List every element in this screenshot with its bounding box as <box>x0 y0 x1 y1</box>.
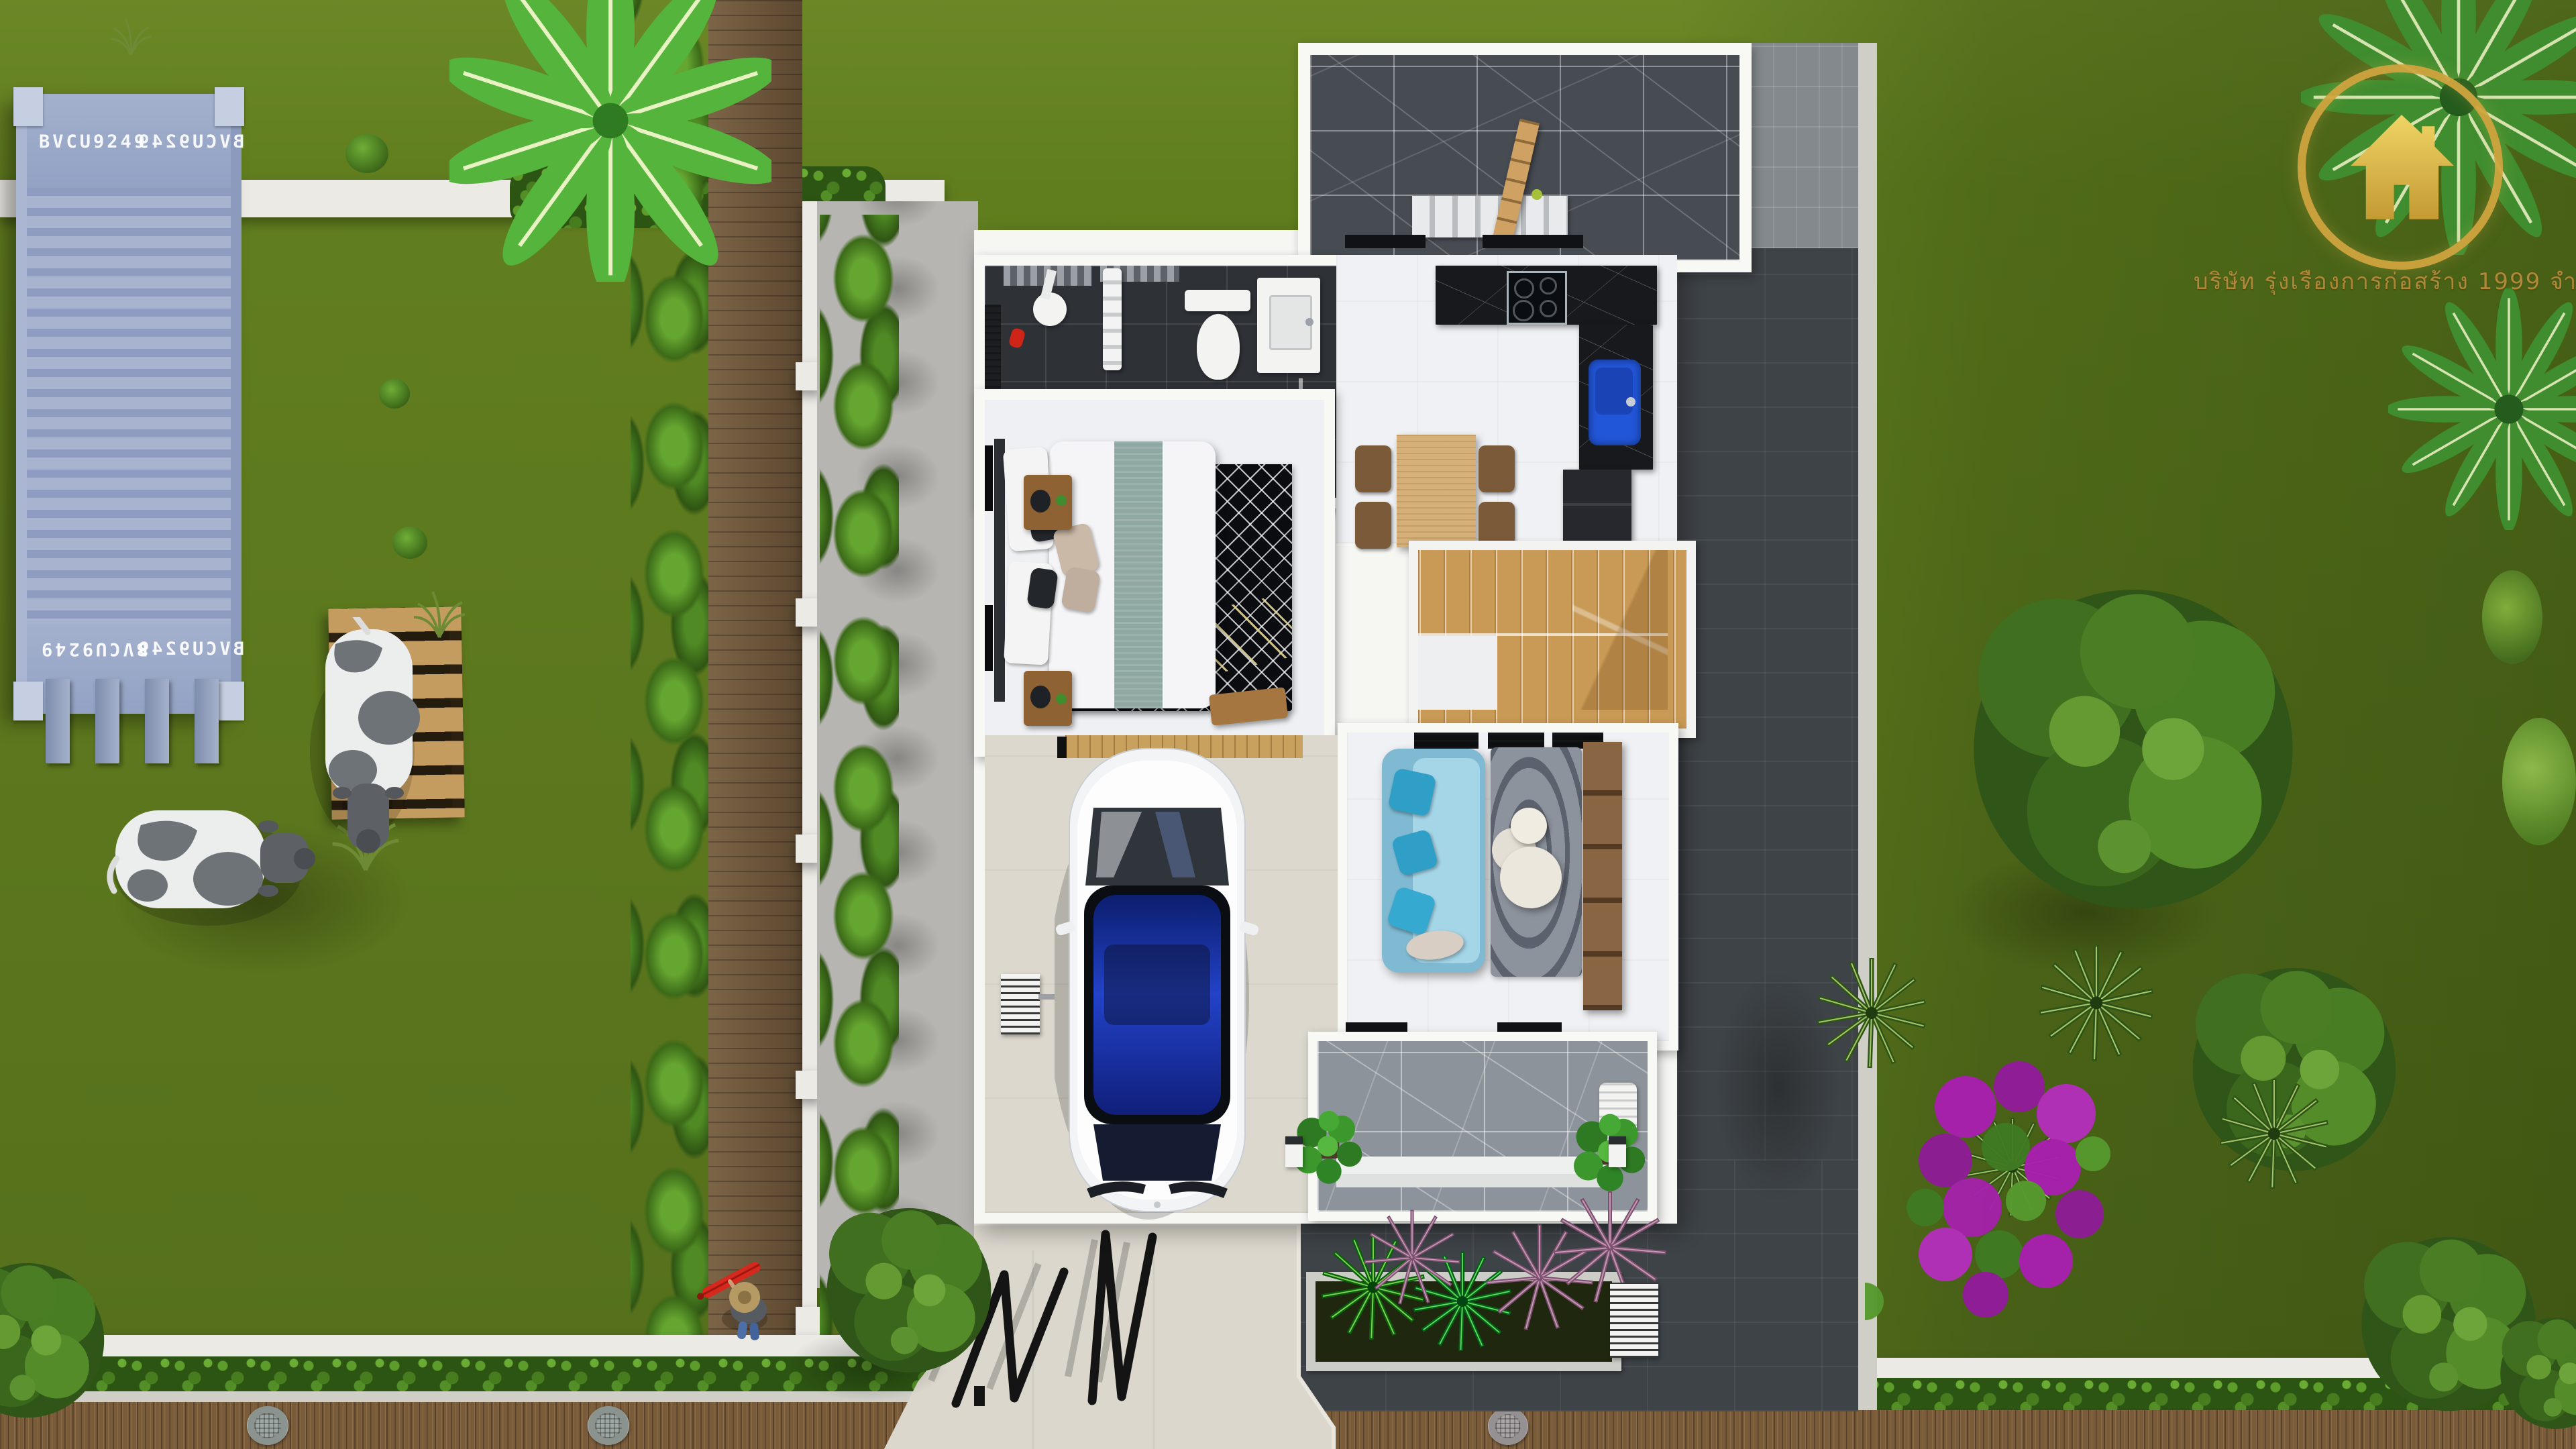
throw-pillow-beige <box>1061 566 1101 613</box>
living-room <box>1338 723 1678 1051</box>
induction-cooktop <box>1507 271 1567 325</box>
u-shaped-staircase <box>1409 541 1696 738</box>
container-code-mirrored: BVCU9249 <box>136 131 244 152</box>
nightstand <box>1024 671 1072 726</box>
company-logo-ring <box>2298 64 2503 270</box>
table-lamp <box>1030 686 1051 708</box>
toilet-bowl <box>1197 314 1240 380</box>
lawn-bush <box>379 379 410 409</box>
bed-headboard <box>994 439 1005 702</box>
container-corner-post <box>215 682 244 720</box>
wall-tv <box>985 445 993 511</box>
light-shrub-right-edge <box>2482 570 2542 664</box>
dining-table <box>1397 435 1476 547</box>
sink-bowl <box>1595 368 1633 415</box>
container-door-beam <box>95 679 119 763</box>
tree-over-walkway <box>792 1174 1026 1402</box>
container-door-beam <box>46 679 70 763</box>
render-canvas: BVCU9249 BVCU9249 BVCU9249 BVCU9249 <box>0 0 2576 1449</box>
faucet <box>1305 318 1313 326</box>
blue-kitchen-sink <box>1589 360 1641 445</box>
lawn-bush <box>345 134 388 173</box>
porch-door-glass <box>1346 1022 1407 1032</box>
container-corrugation <box>27 188 231 624</box>
stair-lower-landing <box>1418 636 1497 710</box>
container-door-beam <box>195 679 219 763</box>
tv-console <box>1583 742 1622 1010</box>
palm-tree-right <box>2388 282 2576 537</box>
manhole-cover <box>588 1406 629 1445</box>
dining-chair <box>1355 445 1391 492</box>
porch-lamp <box>1285 1136 1303 1167</box>
sink-faucet <box>1626 397 1635 407</box>
yucca-plant <box>2207 1067 2341 1201</box>
lamp-top <box>1609 1136 1626 1144</box>
terrace-plant-dot <box>1532 189 1542 200</box>
container-code: BVCU9249 <box>39 131 148 152</box>
small-plant <box>1056 694 1067 704</box>
burner <box>1513 300 1534 321</box>
round-coffee-table <box>1500 847 1562 908</box>
blue-sofa <box>1382 749 1485 973</box>
wall-tv <box>985 605 993 671</box>
porch-door-glass <box>1497 1022 1562 1032</box>
container-rail <box>16 94 27 714</box>
container-corner-post <box>13 87 43 126</box>
terrace-bench <box>1412 196 1568 237</box>
utility-box <box>1610 1283 1658 1358</box>
dining-chair <box>1355 502 1391 549</box>
shipping-container: BVCU9249 BVCU9249 BVCU9249 BVCU9249 <box>16 94 241 714</box>
porch-lamp <box>1609 1136 1626 1167</box>
person-with-red-umbrella <box>691 1245 792 1352</box>
manhole-cover <box>1488 1407 1528 1445</box>
container-door-beam <box>145 679 169 763</box>
terrace-door-glass <box>1345 235 1426 248</box>
refrigerator <box>1563 470 1631 541</box>
stair-winder-treads <box>1572 550 1668 710</box>
tree-bottom-left-edge <box>0 1228 134 1449</box>
container-code-bottom-mirrored: BVCU9249 <box>136 639 244 659</box>
ac-pipe <box>1038 994 1055 1000</box>
toilet-tank <box>1185 290 1250 311</box>
lamp-top <box>1285 1136 1303 1144</box>
burner <box>1540 300 1557 317</box>
hanging-towel <box>1103 268 1122 370</box>
container-code-bottom: BVCU9249 <box>39 639 148 659</box>
light-shrub-right-edge <box>2502 718 2576 845</box>
container-corner-post <box>215 87 244 126</box>
sofa-pillow-teal <box>1387 767 1437 817</box>
burner <box>1540 277 1557 294</box>
wall-shelf-black <box>1414 733 1479 749</box>
manhole-cover <box>247 1406 288 1445</box>
dining-chair <box>1479 445 1515 492</box>
grass-tuft <box>101 7 161 60</box>
large-tree <box>1912 523 2355 966</box>
lawn-bush <box>392 527 427 559</box>
gold-house-icon <box>2338 103 2465 231</box>
purple-cordyline <box>1355 1201 1469 1315</box>
tree-bottom-right <box>2469 1295 2576 1449</box>
bed-sage-runner <box>1114 441 1163 708</box>
banana-palm-top-left <box>443 0 778 282</box>
container-rail <box>231 94 241 714</box>
accent-pillow-dark <box>1026 567 1059 609</box>
red-soap-bottle <box>1008 327 1026 349</box>
table-lamp <box>1030 490 1051 513</box>
round-coffee-table <box>1511 808 1547 844</box>
container-corner-post <box>13 682 43 720</box>
nightstand <box>1024 475 1072 530</box>
bedroom <box>974 389 1335 757</box>
fridge-door-seam <box>1563 503 1631 506</box>
company-name-text: บริษัท รุ่งเรืองการก่อสร้าง 1999 จำกัด <box>2194 263 2569 299</box>
wall-shelf-black <box>1488 733 1544 749</box>
bougainvillea <box>1865 1046 2173 1328</box>
small-plant <box>1056 495 1067 506</box>
burner <box>1514 278 1534 299</box>
white-car <box>1055 743 1260 1222</box>
terrace-door-glass <box>1483 235 1583 248</box>
grazing-cow <box>101 785 322 946</box>
air-conditioner-unit <box>1001 974 1040 1034</box>
